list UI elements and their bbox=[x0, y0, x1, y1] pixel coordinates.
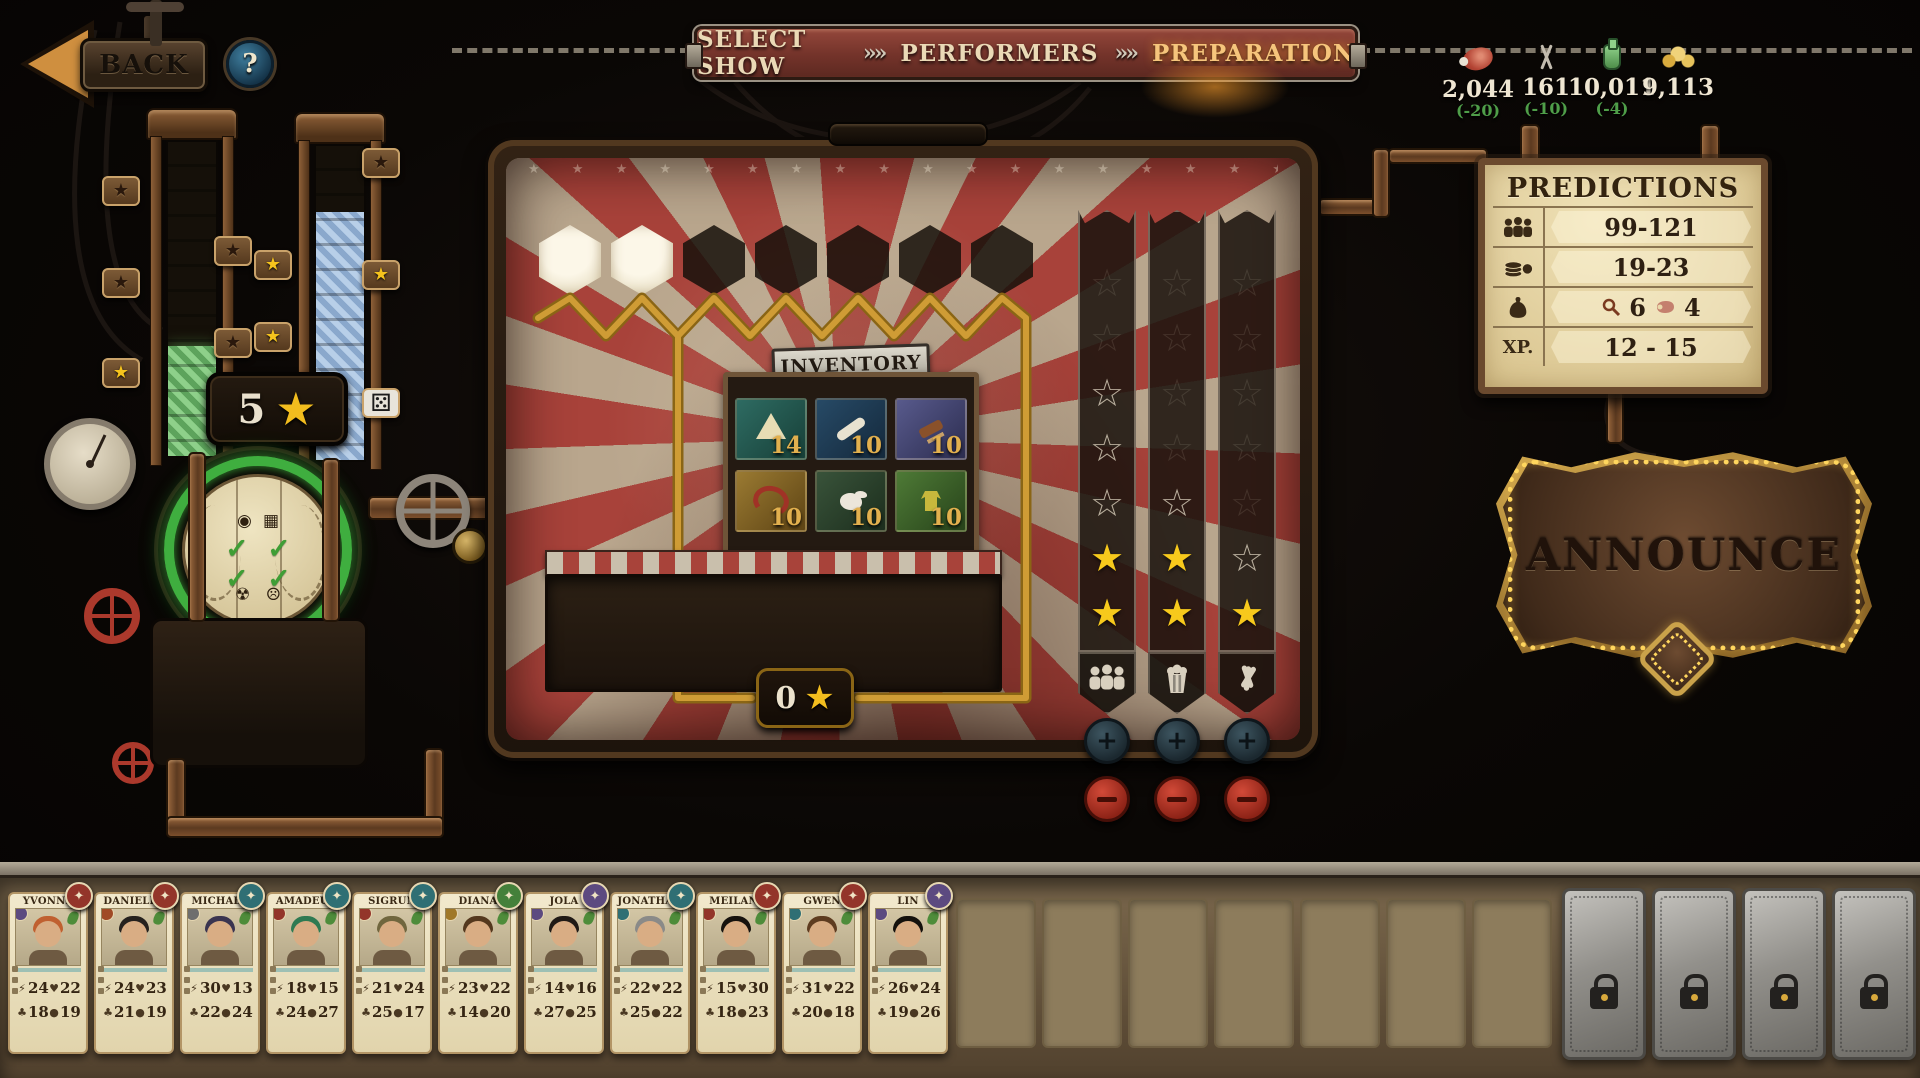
item-count: 10 bbox=[850, 433, 882, 458]
leaf-icon bbox=[409, 909, 424, 926]
prediction-row-xp: XP. 12 - 15 bbox=[1493, 326, 1753, 366]
lock-icon bbox=[1590, 987, 1618, 1009]
card-trim-decoration bbox=[700, 966, 706, 994]
readiness-checks: ✓ ✓ ✓ ✓ bbox=[216, 535, 300, 593]
inventory-item-bone[interactable]: 10 bbox=[815, 398, 887, 460]
pressure-gauge bbox=[44, 418, 136, 510]
red-valve-wheel[interactable] bbox=[84, 588, 140, 644]
flask-icon bbox=[1603, 44, 1621, 70]
total-stars-badge: 5 ★ bbox=[206, 372, 348, 446]
total-stars-value: 5 bbox=[237, 386, 265, 433]
props-icon bbox=[1218, 652, 1276, 714]
luck-icon: ♣ bbox=[188, 1006, 200, 1019]
performer-card[interactable]: DIANA ⚡23♥22 ♣14●20 bbox=[438, 892, 518, 1054]
class-dot-icon bbox=[531, 908, 544, 921]
locked-roster-slot[interactable] bbox=[1832, 888, 1916, 1060]
class-dot-icon bbox=[15, 908, 28, 921]
performer-portrait bbox=[445, 908, 511, 966]
audience-prediction: 99-121 bbox=[1551, 211, 1751, 243]
lock-icon bbox=[1680, 987, 1708, 1009]
magnifier-icon bbox=[1601, 297, 1621, 317]
step-preparation[interactable]: PREPARATION bbox=[1152, 40, 1355, 67]
leaf-icon bbox=[151, 909, 166, 926]
performer-card[interactable]: JONATHAN ⚡22♥22 ♣25●22 bbox=[610, 892, 690, 1054]
performer-stats: ⚡22♥22 ♣25●22 bbox=[618, 976, 682, 1024]
performer-stats: ⚡21♥24 ♣25●17 bbox=[360, 976, 424, 1024]
item-count: 10 bbox=[850, 505, 882, 530]
performer-type-badge bbox=[495, 882, 523, 910]
charm-icon: ♥ bbox=[306, 982, 318, 995]
performer-stats: ⚡14♥16 ♣27●25 bbox=[532, 976, 596, 1024]
empty-roster-slot[interactable] bbox=[1042, 898, 1122, 1048]
star-slot bbox=[1219, 531, 1275, 586]
luck-icon: ♣ bbox=[360, 1006, 372, 1019]
prediction-row-audience: 99-121 bbox=[1493, 206, 1753, 246]
act-slot-4[interactable] bbox=[755, 225, 817, 295]
performer-card[interactable]: MEILANI ⚡15♥30 ♣18●23 bbox=[696, 892, 776, 1054]
resource-delta: (-10) bbox=[1524, 100, 1568, 118]
star-slot bbox=[1149, 311, 1205, 366]
check-icon: ✓ bbox=[267, 535, 290, 563]
prediction-row-money: 19-23 bbox=[1493, 246, 1753, 286]
supplies-value-b: 4 bbox=[1684, 293, 1701, 322]
performer-card[interactable]: MICHAEL ⚡30♥13 ♣22●24 bbox=[180, 892, 260, 1054]
charm-icon: ♥ bbox=[908, 982, 920, 995]
card-trim-decoration bbox=[356, 966, 362, 994]
add-audience-button[interactable] bbox=[1084, 718, 1130, 764]
stamina-icon: ● bbox=[220, 1006, 232, 1019]
star-slot bbox=[1219, 476, 1275, 531]
inventory-item-harness[interactable]: 10 bbox=[735, 470, 807, 532]
inventory-item-poodle[interactable]: 10 bbox=[815, 470, 887, 532]
predictions-title: PREDICTIONS bbox=[1485, 173, 1761, 204]
star-slot bbox=[1079, 256, 1135, 311]
show-setup-panel: ★ ★ ★ ★ ★ ★ ★ ★ ★ ★ ★ ★ ★ ★ ★ ★ ★ ★ ★ ★ … bbox=[488, 140, 1318, 758]
performer-portrait bbox=[101, 908, 167, 966]
luck-icon: ♣ bbox=[16, 1006, 28, 1019]
pipe-decoration bbox=[188, 452, 206, 622]
card-trim-decoration bbox=[270, 966, 276, 994]
performer-type-badge bbox=[65, 882, 93, 910]
milestone-star-tag bbox=[102, 176, 140, 206]
item-count: 10 bbox=[770, 505, 802, 530]
performer-stats: ⚡23♥22 ♣14●20 bbox=[446, 976, 510, 1024]
remove-concessions-button[interactable] bbox=[1154, 776, 1200, 822]
performer-stats: ⚡15♥30 ♣18●23 bbox=[704, 976, 768, 1024]
card-trim-decoration bbox=[528, 966, 534, 994]
card-trim-decoration bbox=[442, 966, 448, 994]
earned-stars-value: 0 bbox=[775, 681, 796, 716]
charm-icon: ♥ bbox=[564, 982, 576, 995]
star-slot bbox=[1149, 366, 1205, 421]
rating-column-props bbox=[1218, 210, 1276, 652]
charm-icon: ♥ bbox=[48, 982, 60, 995]
star-icon: ★ bbox=[275, 386, 316, 432]
step-select-show[interactable]: SELECT SHOW bbox=[697, 26, 847, 80]
class-dot-icon bbox=[101, 908, 114, 921]
performer-card[interactable]: GWEN ⚡31♥22 ♣20●18 bbox=[782, 892, 862, 1054]
leaf-icon bbox=[839, 909, 854, 926]
pipe-decoration bbox=[1606, 390, 1624, 444]
star-slot bbox=[1219, 256, 1275, 311]
breadcrumb: SELECT SHOW »» PERFORMERS »» PREPARATION bbox=[694, 26, 1358, 80]
charm-icon: ♥ bbox=[822, 982, 834, 995]
charm-icon: ♥ bbox=[478, 982, 490, 995]
leaf-icon bbox=[925, 909, 940, 926]
star-slot bbox=[1079, 366, 1135, 421]
stamina-icon: ● bbox=[564, 1006, 576, 1019]
stamina-icon: ● bbox=[822, 1006, 834, 1019]
money-icon bbox=[1493, 248, 1545, 286]
stamina-icon: ● bbox=[908, 1006, 920, 1019]
performer-card[interactable]: LIN ⚡26♥24 ♣19●26 bbox=[868, 892, 948, 1054]
remove-audience-button[interactable] bbox=[1084, 776, 1130, 822]
star-slot bbox=[1219, 586, 1275, 641]
milestone-star-tag bbox=[362, 260, 400, 290]
milestone-star-tag bbox=[102, 268, 140, 298]
earned-stars-counter: 0 ★ bbox=[756, 668, 854, 728]
empty-roster-slot[interactable] bbox=[1214, 898, 1294, 1048]
performer-stats: ⚡30♥13 ♣22●24 bbox=[188, 976, 252, 1024]
empty-roster-slot[interactable] bbox=[1128, 898, 1208, 1048]
performer-card[interactable]: JOLA ⚡14♥16 ♣27●25 bbox=[524, 892, 604, 1054]
card-trim-decoration bbox=[614, 966, 620, 994]
performer-type-badge bbox=[237, 882, 265, 910]
star-slot bbox=[1149, 476, 1205, 531]
tower1-left-rail bbox=[150, 136, 162, 466]
resource-coins: 9,113 bbox=[1630, 38, 1726, 100]
performer-portrait bbox=[875, 908, 941, 966]
class-dot-icon bbox=[789, 908, 802, 921]
star-slot bbox=[1149, 421, 1205, 476]
check-icon: ✓ bbox=[225, 565, 248, 593]
supplies-prediction: 6 4 bbox=[1551, 291, 1751, 323]
performer-stats: ⚡24♥22 ♣18●19 bbox=[16, 976, 80, 1024]
charm-icon: ♥ bbox=[220, 982, 232, 995]
leaf-icon bbox=[495, 909, 510, 926]
check-icon: ✓ bbox=[225, 535, 248, 563]
star-slot bbox=[1079, 311, 1135, 366]
star-slot bbox=[1149, 586, 1205, 641]
rating-column-concessions bbox=[1148, 210, 1206, 652]
card-trim-decoration bbox=[184, 966, 190, 994]
performer-portrait bbox=[531, 908, 597, 966]
stamina-icon: ● bbox=[306, 1006, 318, 1019]
performer-portrait bbox=[15, 908, 81, 966]
predictions-panel: PREDICTIONS 99-121 19-23 bbox=[1478, 158, 1768, 394]
meat-small-icon bbox=[1654, 299, 1676, 315]
star-slot bbox=[1149, 531, 1205, 586]
resource-value: 9,113 bbox=[1642, 76, 1714, 100]
leaf-icon bbox=[667, 909, 682, 926]
performer-type-badge bbox=[409, 882, 437, 910]
star-slot bbox=[1079, 476, 1135, 531]
back-button[interactable]: BACK bbox=[16, 16, 216, 112]
help-button[interactable]: ? bbox=[226, 40, 274, 88]
star-slot bbox=[1219, 366, 1275, 421]
performer-type-badge bbox=[839, 882, 867, 910]
panel-handle bbox=[828, 122, 988, 146]
performer-portrait bbox=[187, 908, 253, 966]
milestone-star-tag bbox=[214, 236, 252, 266]
mask-icon bbox=[237, 511, 252, 531]
card-trim-decoration bbox=[786, 966, 792, 994]
awning-stripe-decoration bbox=[545, 550, 1002, 576]
performer-type-badge bbox=[925, 882, 953, 910]
add-props-button[interactable] bbox=[1224, 718, 1270, 764]
inventory-item-tool[interactable]: 10 bbox=[895, 398, 967, 460]
performer-type-badge bbox=[581, 882, 609, 910]
star-slot bbox=[1149, 256, 1205, 311]
arrow-separator-icon: »» bbox=[863, 40, 885, 66]
milestone-star-tag bbox=[254, 250, 292, 280]
pipe-decoration bbox=[322, 458, 340, 622]
stamina-icon: ● bbox=[134, 1006, 146, 1019]
milestone-star-tag bbox=[102, 358, 140, 388]
class-dot-icon bbox=[875, 908, 888, 921]
lever-handle-decoration bbox=[126, 2, 184, 12]
act-slot-6[interactable] bbox=[899, 225, 961, 295]
money-prediction: 19-23 bbox=[1551, 251, 1751, 283]
luck-icon: ♣ bbox=[876, 1006, 888, 1019]
crate-icon bbox=[263, 511, 279, 531]
star-slot bbox=[1079, 421, 1135, 476]
star-slot bbox=[1079, 586, 1135, 641]
class-dot-icon bbox=[617, 908, 630, 921]
star-slot bbox=[1219, 311, 1275, 366]
charm-icon: ♥ bbox=[134, 982, 146, 995]
class-dot-icon bbox=[445, 908, 458, 921]
roster-top-rail bbox=[0, 862, 1920, 878]
supplies-value-a: 6 bbox=[1629, 293, 1646, 322]
stamina-icon: ● bbox=[650, 1006, 662, 1019]
stamina-icon: ● bbox=[736, 1006, 748, 1019]
milestone-star-tag bbox=[214, 328, 252, 358]
brass-knob bbox=[452, 528, 488, 564]
star-border-decoration: ★ ★ ★ ★ ★ ★ ★ ★ ★ ★ ★ ★ ★ ★ ★ ★ ★ ★ ★ ★ … bbox=[528, 162, 1278, 180]
leaf-icon bbox=[65, 909, 80, 926]
class-dot-icon bbox=[273, 908, 286, 921]
connector-dashes-left bbox=[452, 48, 690, 53]
locked-roster-slot[interactable] bbox=[1652, 888, 1736, 1060]
performer-portrait bbox=[703, 908, 769, 966]
machine-body bbox=[150, 618, 368, 768]
luck-icon: ♣ bbox=[618, 1006, 630, 1019]
step-performers[interactable]: PERFORMERS bbox=[900, 40, 1098, 67]
act-slot-2[interactable] bbox=[611, 225, 673, 295]
performer-card[interactable]: SIGRUN ⚡21♥24 ♣25●17 bbox=[352, 892, 432, 1054]
item-count: 10 bbox=[930, 505, 962, 530]
star-icon: ★ bbox=[804, 681, 834, 715]
performer-portrait bbox=[617, 908, 683, 966]
audience-icon bbox=[1493, 208, 1545, 246]
rating-column-audience bbox=[1078, 210, 1136, 652]
inventory-item-tent[interactable]: 14 bbox=[735, 398, 807, 460]
xp-prediction: 12 - 15 bbox=[1551, 331, 1751, 363]
card-trim-decoration bbox=[872, 966, 878, 994]
milestone-star-tag bbox=[254, 322, 292, 352]
red-valve-wheel-small[interactable] bbox=[112, 742, 154, 784]
charm-icon: ♥ bbox=[736, 982, 748, 995]
performer-roster: YVONNE ⚡24♥22 ♣18●19 DANIELLE bbox=[0, 862, 1920, 1078]
stamina-icon: ● bbox=[48, 1006, 60, 1019]
stamina-icon: ● bbox=[392, 1006, 404, 1019]
add-concessions-button[interactable] bbox=[1154, 718, 1200, 764]
performer-portrait bbox=[359, 908, 425, 966]
locked-roster-slot[interactable] bbox=[1742, 888, 1826, 1060]
luck-icon: ♣ bbox=[790, 1006, 802, 1019]
game-screen: BACK ? SELECT SHOW »» PERFORMERS »» PREP… bbox=[0, 0, 1920, 1078]
class-dot-icon bbox=[359, 908, 372, 921]
prediction-row-supplies: 6 4 bbox=[1493, 286, 1753, 326]
performer-type-badge bbox=[323, 882, 351, 910]
popcorn-icon bbox=[1148, 652, 1206, 714]
back-arrow-icon-inner bbox=[28, 30, 88, 98]
pipe-decoration bbox=[166, 816, 444, 838]
star-slot bbox=[1079, 531, 1135, 586]
act-slot-1[interactable] bbox=[539, 225, 601, 295]
item-count: 14 bbox=[770, 433, 802, 458]
leaf-icon bbox=[237, 909, 252, 926]
empty-roster-slot[interactable] bbox=[1386, 898, 1466, 1048]
performer-card[interactable]: DANIELLE ⚡24♥23 ♣21●19 bbox=[94, 892, 174, 1054]
stamina-icon: ● bbox=[478, 1006, 490, 1019]
item-count: 10 bbox=[930, 433, 962, 458]
milestone-star-tag bbox=[362, 148, 400, 178]
cutlery-icon bbox=[1532, 42, 1560, 72]
performer-stats: ⚡26♥24 ♣19●26 bbox=[876, 976, 940, 1024]
performer-portrait bbox=[273, 908, 339, 966]
xp-label: XP. bbox=[1493, 328, 1545, 366]
performer-stats: ⚡24♥23 ♣21●19 bbox=[102, 976, 166, 1024]
luck-icon: ♣ bbox=[102, 1006, 114, 1019]
bag-icon bbox=[1493, 288, 1545, 326]
act-slot-5[interactable] bbox=[827, 225, 889, 295]
performer-stats: ⚡31♥22 ♣20●18 bbox=[790, 976, 854, 1024]
arrow-separator-icon: »» bbox=[1114, 40, 1136, 66]
performer-portrait bbox=[789, 908, 855, 966]
announce-label: ANNOUNCE bbox=[1526, 530, 1842, 581]
meat-icon bbox=[1461, 45, 1495, 73]
audience-icon bbox=[1078, 652, 1136, 714]
performer-type-badge bbox=[151, 882, 179, 910]
performer-type-badge bbox=[753, 882, 781, 910]
pipe-decoration bbox=[1388, 148, 1488, 164]
performer-card[interactable]: YVONNE ⚡24♥22 ♣18●19 bbox=[8, 892, 88, 1054]
tower2-right-rail bbox=[370, 140, 382, 470]
resource-delta: (-20) bbox=[1456, 102, 1500, 120]
star-slot bbox=[1219, 421, 1275, 476]
charm-icon: ♥ bbox=[650, 982, 662, 995]
luck-icon: ♣ bbox=[704, 1006, 716, 1019]
back-label: BACK bbox=[99, 50, 188, 80]
card-trim-decoration bbox=[98, 966, 104, 994]
resource-value: 161 bbox=[1522, 76, 1570, 100]
performer-type-badge bbox=[667, 882, 695, 910]
empty-roster-slot[interactable] bbox=[956, 898, 1036, 1048]
check-icon: ✓ bbox=[267, 565, 290, 593]
lock-icon bbox=[1860, 987, 1888, 1009]
charm-icon: ♥ bbox=[392, 982, 404, 995]
leaf-icon bbox=[753, 909, 768, 926]
empty-roster-slot[interactable] bbox=[1472, 898, 1552, 1048]
card-trim-decoration bbox=[12, 966, 18, 994]
inventory-item-costume[interactable]: 10 bbox=[895, 470, 967, 532]
leaf-icon bbox=[581, 909, 596, 926]
act-slot-7[interactable] bbox=[971, 225, 1033, 295]
lock-icon bbox=[1770, 987, 1798, 1009]
act-slot-3[interactable] bbox=[683, 225, 745, 295]
resource-delta: (-4) bbox=[1596, 100, 1629, 118]
performer-card[interactable]: AMADEUS ⚡18♥15 ♣24●27 bbox=[266, 892, 346, 1054]
back-label-plate: BACK bbox=[80, 38, 208, 92]
performer-stats: ⚡18♥15 ♣24●27 bbox=[274, 976, 338, 1024]
milestone-dice-tag bbox=[362, 388, 400, 418]
class-dot-icon bbox=[703, 908, 716, 921]
empty-roster-slot[interactable] bbox=[1300, 898, 1380, 1048]
remove-props-button[interactable] bbox=[1224, 776, 1270, 822]
class-dot-icon bbox=[187, 908, 200, 921]
leaf-icon bbox=[323, 909, 338, 926]
luck-icon: ♣ bbox=[274, 1006, 286, 1019]
luck-icon: ♣ bbox=[532, 1006, 544, 1019]
coins-icon bbox=[1661, 45, 1695, 69]
question-mark-icon: ? bbox=[242, 49, 257, 79]
locked-roster-slot[interactable] bbox=[1562, 888, 1646, 1060]
luck-icon: ♣ bbox=[446, 1006, 458, 1019]
